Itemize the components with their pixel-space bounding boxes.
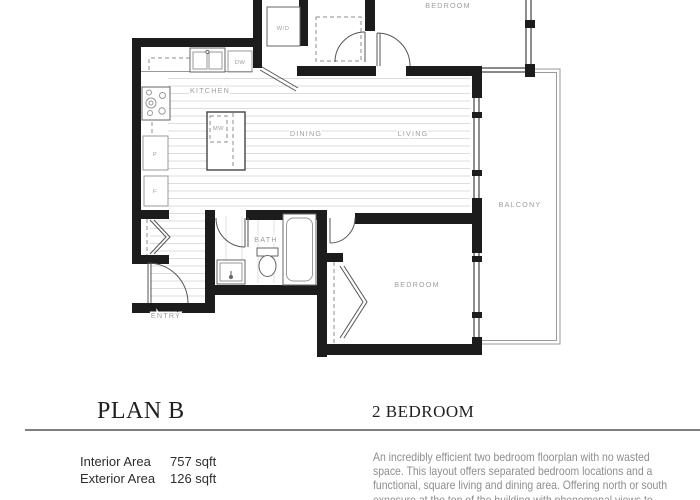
section-divider <box>25 429 700 431</box>
description-line: functional, square living and dining are… <box>373 478 669 492</box>
exterior-area-value: 126 sqft <box>170 472 216 486</box>
floorplan-drawing: KITCHEN DINING LIVING BEDROOM BEDROOM BA… <box>0 0 700 392</box>
interior-area-value: 757 sqft <box>170 455 216 469</box>
interior-area-label: Interior Area <box>80 455 170 469</box>
plan-subtitle: 2 BEDROOM <box>372 403 474 422</box>
floorplan-page: KITCHEN DINING LIVING BEDROOM BEDROOM BA… <box>0 0 700 500</box>
kitchen-sink <box>190 48 225 72</box>
fixture-label-pantry: P <box>153 152 157 158</box>
room-label-entry: ENTRY <box>151 311 181 320</box>
room-label-bedroom-bottom: BEDROOM <box>394 280 440 289</box>
description-line: space. This layout offers separated bedr… <box>373 464 669 478</box>
room-label-dining: DINING <box>290 129 322 138</box>
area-table: Interior Area 757 sqft Exterior Area 126… <box>80 455 216 486</box>
bath-sink <box>217 260 245 284</box>
room-label-bath: BATH <box>254 235 277 244</box>
description-line: An incredibly efficient two bedroom floo… <box>373 450 669 464</box>
exterior-area-label: Exterior Area <box>80 472 170 486</box>
windows <box>474 0 531 337</box>
room-label-bedroom-top: BEDROOM <box>425 1 471 10</box>
bathtub <box>283 214 316 285</box>
kitchen-island <box>207 112 245 170</box>
fixture-label-fridge: F <box>153 189 157 195</box>
room-label-balcony: BALCONY <box>499 200 542 209</box>
fixture-label-washer-dryer: W/D <box>277 26 290 32</box>
fixture-label-dishwasher: DW <box>235 60 246 66</box>
toilet <box>257 248 278 277</box>
room-label-kitchen: KITCHEN <box>190 86 230 95</box>
plan-title: PLAN B <box>97 398 185 424</box>
stove <box>142 87 170 120</box>
plan-description: An incredibly efficient two bedroom floo… <box>373 450 669 500</box>
hall-closet-dashed <box>316 17 361 61</box>
room-label-living: LIVING <box>398 129 429 138</box>
fixture-label-microwave: MW <box>213 126 224 132</box>
description-line: exposure at the top of the building with… <box>373 493 669 500</box>
